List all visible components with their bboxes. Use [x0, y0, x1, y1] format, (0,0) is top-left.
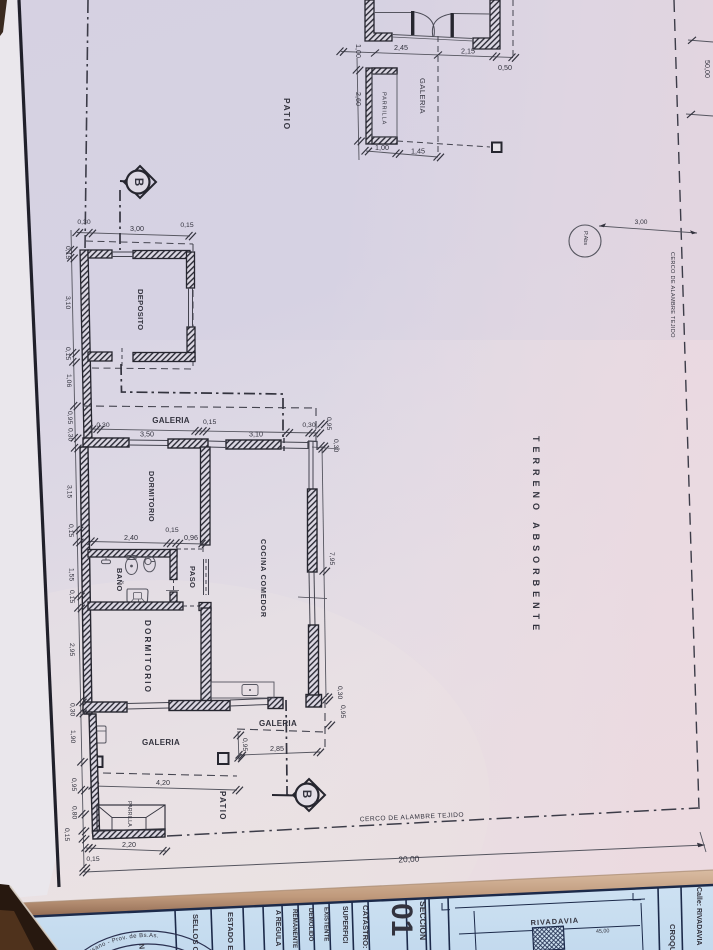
svg-text:0,30: 0,30 [302, 422, 315, 429]
svg-text:GALERIA: GALERIA [418, 78, 427, 114]
svg-text:0,15: 0,15 [68, 590, 75, 603]
svg-text:Calle: RIVADAVIA: Calle: RIVADAVIA [695, 887, 702, 945]
svg-text:0,15: 0,15 [67, 524, 74, 537]
svg-text:0,15: 0,15 [180, 222, 193, 229]
svg-text:DORMITORIO: DORMITORIO [143, 620, 152, 694]
svg-text:3,00: 3,00 [635, 219, 648, 226]
svg-text:7,95: 7,95 [328, 552, 335, 565]
svg-text:CERCO DE ALAMBRE TEJIDO: CERCO DE ALAMBRE TEJIDO [669, 252, 675, 338]
svg-text:0,95: 0,95 [70, 778, 77, 791]
svg-text:01: 01 [385, 903, 418, 936]
svg-text:1,06: 1,06 [65, 374, 72, 387]
svg-text:EXISTENTE: EXISTENTE [323, 907, 330, 941]
svg-text:2,95: 2,95 [68, 643, 75, 656]
svg-text:COCINA COMEDOR: COCINA COMEDOR [259, 539, 268, 618]
svg-text:3,10: 3,10 [64, 296, 71, 309]
svg-text:TERRENO ABSORBENTE: TERRENO ABSORBENTE [531, 436, 541, 635]
svg-text:0,95: 0,95 [66, 411, 73, 424]
svg-text:SECCION: SECCION [418, 901, 428, 940]
svg-text:0,15: 0,15 [86, 856, 99, 863]
svg-text:GALERIA: GALERIA [152, 416, 189, 425]
svg-text:0,80: 0,80 [71, 806, 78, 819]
svg-text:1,00: 1,00 [354, 44, 363, 58]
svg-text:0,30: 0,30 [336, 686, 343, 699]
svg-text:3,00: 3,00 [130, 224, 144, 233]
svg-text:2,85: 2,85 [270, 744, 284, 753]
svg-text:A REGULA: A REGULA [274, 910, 281, 946]
svg-text:3,10: 3,10 [249, 430, 263, 439]
svg-text:0,15: 0,15 [165, 527, 178, 534]
svg-text:0,30: 0,30 [69, 703, 76, 716]
svg-text:2,20: 2,20 [122, 840, 136, 849]
svg-text:1,90: 1,90 [69, 730, 76, 743]
svg-text:1,55: 1,55 [68, 568, 75, 581]
svg-text:B: B [300, 790, 312, 798]
svg-text:2,45: 2,45 [394, 43, 408, 52]
svg-text:0,30: 0,30 [332, 439, 339, 452]
svg-text:GALERIA: GALERIA [259, 719, 297, 728]
svg-text:0,15: 0,15 [64, 347, 71, 360]
svg-text:SELLOS C: SELLOS C [191, 914, 200, 950]
svg-text:PARRILLA: PARRILLA [381, 92, 387, 125]
svg-text:DEMOLIDO: DEMOLIDO [307, 908, 314, 942]
svg-text:BAÑO: BAÑO [115, 568, 124, 592]
svg-text:0,15: 0,15 [63, 828, 70, 841]
svg-text:0,30: 0,30 [96, 422, 109, 429]
svg-text:0,96: 0,96 [184, 533, 198, 542]
svg-text:1,00: 1,00 [375, 143, 389, 152]
svg-text:0,50: 0,50 [498, 63, 512, 72]
svg-text:CATASTRO:: CATASTRO: [361, 905, 370, 949]
svg-text:SUPERFICI: SUPERFICI [341, 906, 348, 943]
svg-text:3,50: 3,50 [140, 430, 154, 439]
svg-text:PASO: PASO [188, 566, 197, 588]
svg-text:PATIO: PATIO [282, 98, 292, 131]
svg-text:0,30: 0,30 [77, 219, 90, 226]
svg-text:CROQUIS: CROQUIS [668, 924, 677, 950]
svg-text:0,15: 0,15 [64, 246, 71, 259]
svg-text:REMANENTE: REMANENTE [291, 909, 298, 948]
svg-text:0,30: 0,30 [67, 428, 74, 441]
svg-text:DORMITORIO: DORMITORIO [147, 471, 156, 522]
svg-text:1,45: 1,45 [411, 147, 425, 156]
svg-text:20,00: 20,00 [398, 854, 420, 865]
svg-text:PARRILLA: PARRILLA [126, 801, 132, 827]
svg-text:0,15: 0,15 [203, 419, 216, 426]
svg-text:3,15: 3,15 [66, 485, 73, 498]
svg-text:0,95: 0,95 [325, 417, 332, 430]
svg-text:4,20: 4,20 [156, 778, 170, 787]
svg-text:P.Abs: P.Abs [582, 231, 588, 245]
svg-text:DEPOSITO: DEPOSITO [136, 289, 145, 331]
svg-text:50,00: 50,00 [703, 60, 712, 78]
svg-text:45,00: 45,00 [596, 928, 610, 935]
svg-text:0,95: 0,95 [241, 738, 248, 751]
svg-text:0,95: 0,95 [339, 705, 346, 718]
svg-text:2,60: 2,60 [354, 92, 363, 106]
svg-text:PATIO: PATIO [218, 791, 227, 821]
svg-text:2,40: 2,40 [124, 533, 138, 542]
svg-text:2,15: 2,15 [461, 47, 475, 56]
svg-text:GALERIA: GALERIA [142, 738, 180, 747]
svg-text:B: B [132, 178, 144, 186]
svg-text:': ' [307, 801, 318, 803]
svg-text:N: N [137, 943, 147, 949]
svg-text:ESTADO E: ESTADO E [226, 912, 235, 950]
